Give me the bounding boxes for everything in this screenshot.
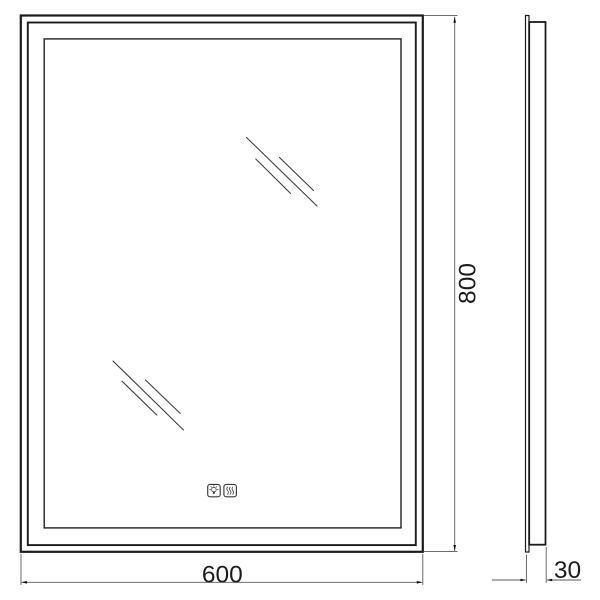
svg-text:600: 600 xyxy=(202,561,243,588)
svg-text:30: 30 xyxy=(554,557,581,584)
svg-text:800: 800 xyxy=(454,263,481,304)
